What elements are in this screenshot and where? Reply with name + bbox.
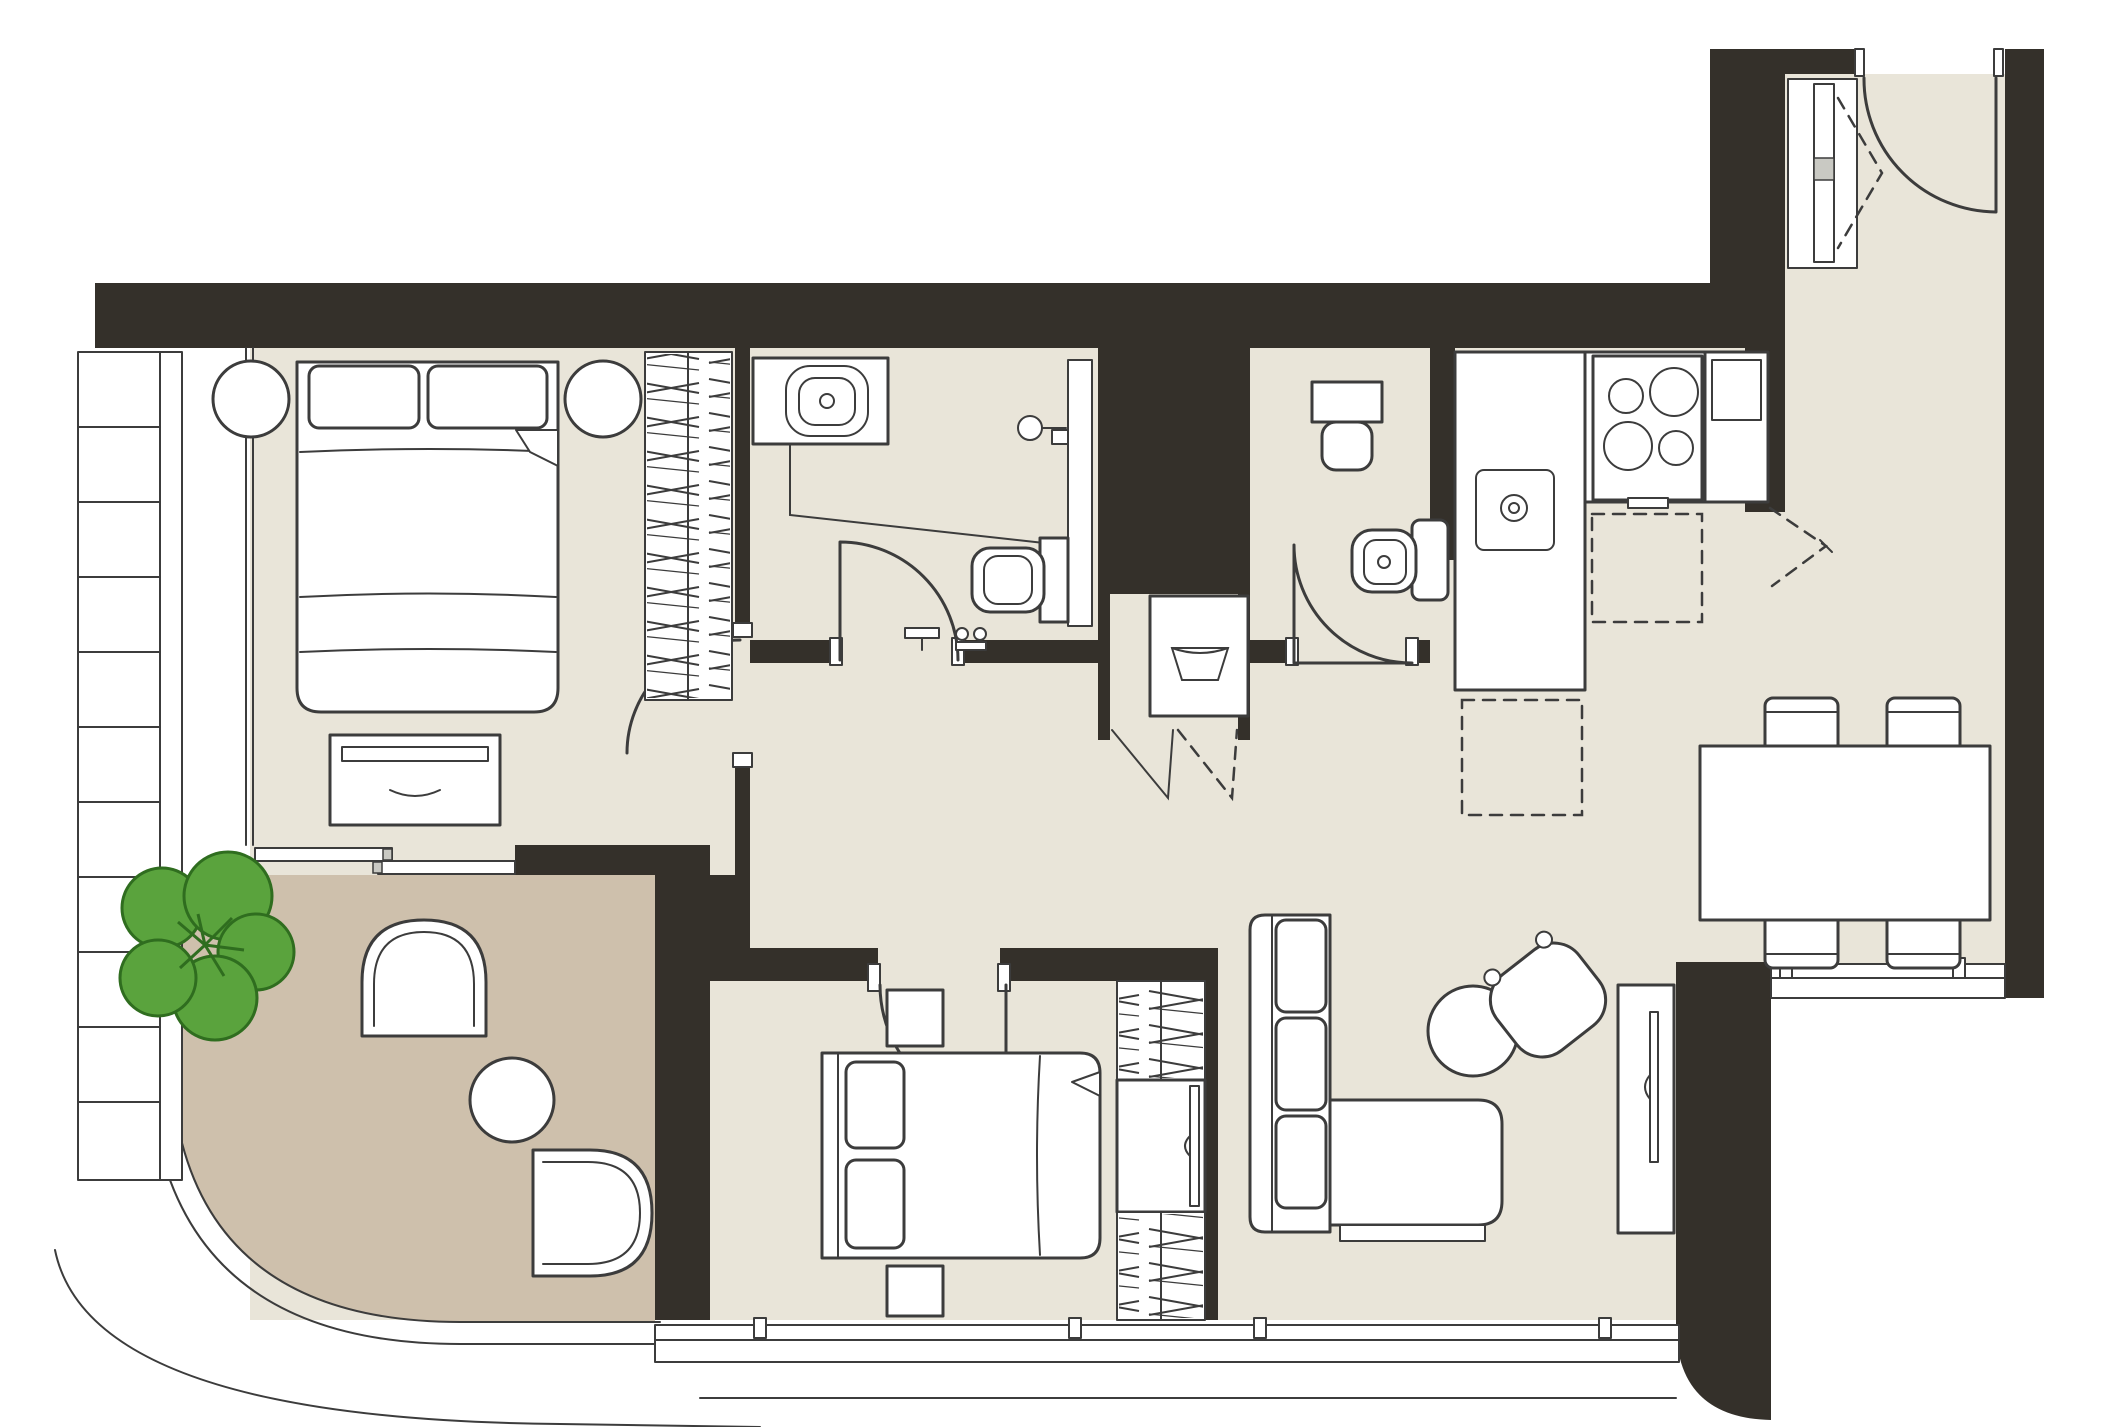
wardrobe-icon bbox=[645, 352, 732, 700]
wall-corridor-a bbox=[750, 948, 878, 981]
nightstand-icon bbox=[887, 990, 943, 1046]
hob-icon bbox=[1593, 356, 1702, 508]
wall-curved-bar bbox=[1676, 962, 1771, 1420]
toilet-icon bbox=[972, 538, 1068, 622]
entry-door-jamb bbox=[1994, 49, 2003, 76]
fridge-icon bbox=[1705, 352, 1768, 502]
dining-table-icon bbox=[1700, 746, 1990, 920]
tv-console-icon bbox=[1618, 985, 1674, 1233]
wall-right bbox=[2005, 49, 2044, 998]
floor-plan-canvas bbox=[0, 0, 2113, 1427]
washing-machine-icon bbox=[1150, 596, 1248, 716]
wall-top bbox=[95, 283, 1785, 348]
bed-icon bbox=[822, 1053, 1100, 1258]
nightstand-icon bbox=[887, 1266, 943, 1316]
laundry-closet bbox=[1150, 596, 1248, 716]
wall-bath-south-left bbox=[750, 640, 838, 663]
round-nightstand-icon bbox=[213, 361, 289, 437]
wall-bed1-right-up bbox=[735, 348, 750, 635]
wall-bed2-right bbox=[1205, 981, 1218, 1320]
shower-glass bbox=[1068, 360, 1092, 626]
vanity-sink-icon bbox=[753, 358, 888, 444]
wardrobe-tv-unit-icon bbox=[1117, 981, 1205, 1320]
bidet-icon bbox=[1352, 520, 1448, 600]
wall-entry-left bbox=[1710, 49, 1785, 292]
dresser-icon bbox=[330, 735, 500, 825]
lounge-chair-icon bbox=[362, 920, 486, 1036]
wall-shaft bbox=[1098, 348, 1250, 594]
round-side-table-icon bbox=[470, 1058, 554, 1142]
louver-screen-icon bbox=[78, 352, 182, 1180]
wall-balcony-top bbox=[515, 845, 655, 875]
wall-laundry-left bbox=[1098, 594, 1110, 740]
kitchen-sink-icon bbox=[1476, 470, 1554, 550]
lounge-chair-icon bbox=[533, 1150, 652, 1276]
round-nightstand-icon bbox=[565, 361, 641, 437]
bed-icon bbox=[297, 362, 558, 712]
wall-filler bbox=[710, 875, 750, 981]
wall-corridor-b bbox=[1000, 948, 1218, 981]
entry-door-jamb bbox=[1855, 49, 1864, 76]
south-window-band bbox=[655, 1318, 1679, 1398]
wall-bed2-left bbox=[655, 845, 710, 1320]
